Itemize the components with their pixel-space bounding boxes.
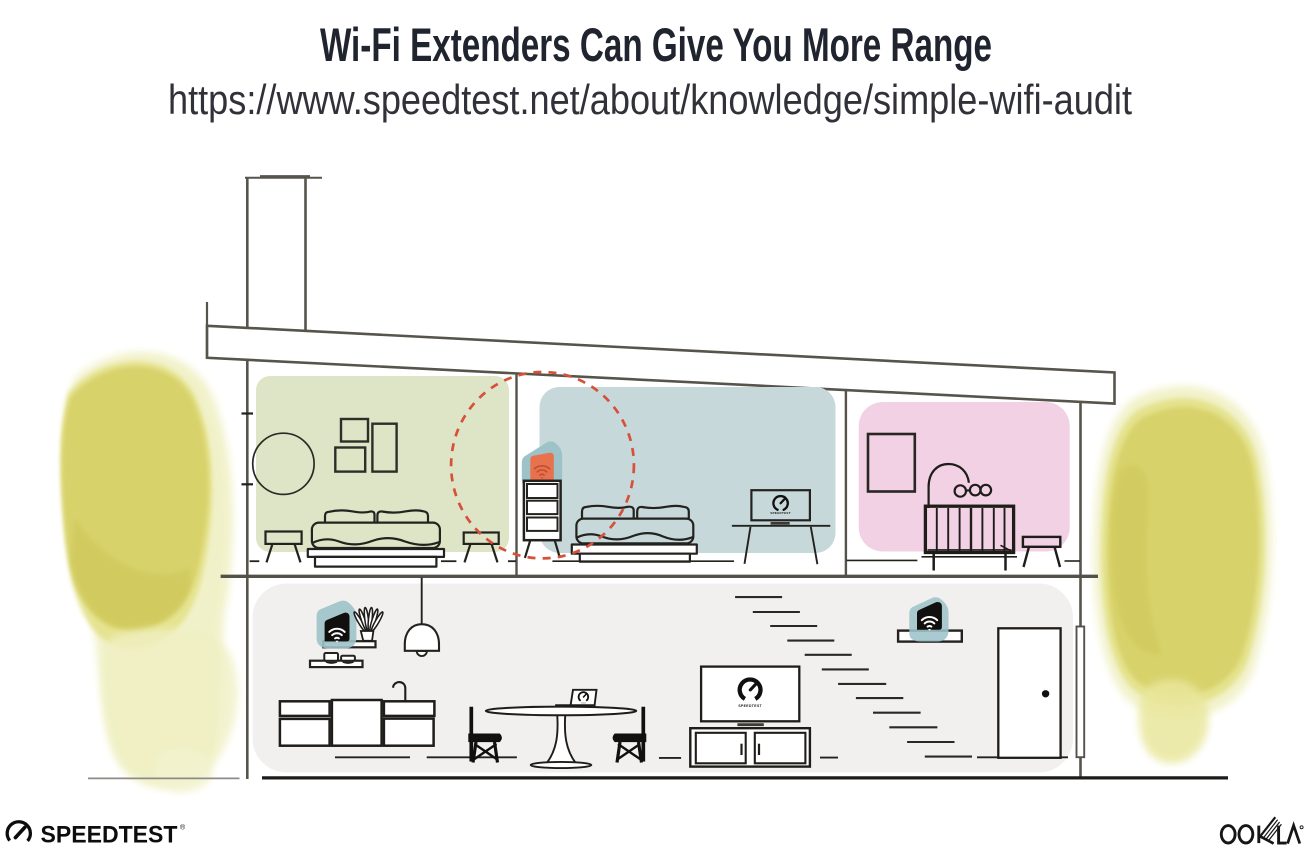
svg-text:®: ® bbox=[180, 824, 186, 832]
svg-text:SPEEDTEST: SPEEDTEST bbox=[41, 822, 178, 849]
svg-text:SPEEDTEST: SPEEDTEST bbox=[770, 511, 791, 515]
svg-text:Wi-Fi Extenders Can Give You M: Wi-Fi Extenders Can Give You More Range bbox=[320, 18, 992, 71]
svg-text:SPEEDTEST: SPEEDTEST bbox=[738, 704, 762, 708]
svg-text:https://www.speedtest.net/abou: https://www.speedtest.net/about/knowledg… bbox=[168, 76, 1132, 123]
